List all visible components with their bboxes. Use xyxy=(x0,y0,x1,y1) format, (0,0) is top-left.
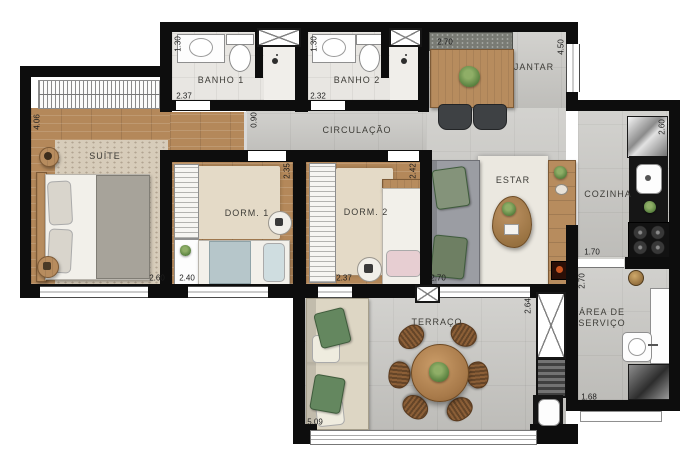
dim-jantar-width: 2.70 xyxy=(437,38,453,47)
dorm2-wardrobe xyxy=(309,163,336,283)
terraco-bbq-sink xyxy=(538,399,560,426)
dim-dorm1-width: 2.40 xyxy=(179,274,195,283)
estar-fireplace-flame-icon xyxy=(556,266,563,273)
suite-label: SUÍTE xyxy=(89,151,121,161)
banho1-label: BANHO 1 xyxy=(198,75,245,85)
banho2-window xyxy=(389,28,422,47)
dorm2-pouf-center xyxy=(364,264,373,273)
banho2-door xyxy=(311,101,345,110)
suite-blanket xyxy=(96,175,150,279)
dim-servico-width: 1.68 xyxy=(581,393,597,402)
banho2-label: BANHO 2 xyxy=(334,75,381,85)
cozinha-faucet-icon xyxy=(645,175,651,181)
banho1-shower-head-icon xyxy=(272,58,278,64)
dim-cozinha-opening: 1.70 xyxy=(584,248,600,257)
floor-plan: SUÍTE BANHO 1 BANHO 2 JANTAR CIRCULAÇÃO … xyxy=(0,0,700,466)
cozinha-label: COZINHA xyxy=(584,189,632,199)
banho1-window xyxy=(257,28,301,47)
estar-sideboard-deco xyxy=(555,184,568,195)
terraco-sliding-door xyxy=(437,286,530,298)
wall xyxy=(669,100,680,411)
dorm2-label: DORM. 2 xyxy=(344,207,389,217)
dorm1-door xyxy=(248,151,286,161)
banho1-toilet xyxy=(229,44,251,72)
wall xyxy=(530,424,578,444)
dim-terraco-height: 2.64 xyxy=(524,298,533,314)
wall xyxy=(625,257,669,269)
suite-bottom-window xyxy=(40,286,148,298)
suite-pouf-center xyxy=(43,262,51,270)
wall xyxy=(293,150,306,290)
dorm2-window xyxy=(318,286,352,298)
dim-dorm1-height: 2.35 xyxy=(283,163,292,179)
wall xyxy=(566,400,680,411)
wall xyxy=(566,225,578,411)
banho1-sink xyxy=(189,38,213,57)
servico-outer-ledge xyxy=(580,411,662,422)
dim-dorm2-height: 2.42 xyxy=(409,163,418,179)
dim-jantar-height: 4.50 xyxy=(557,39,566,55)
jantar-chair-2 xyxy=(473,104,507,130)
dim-banho1-height: 1.30 xyxy=(174,36,183,52)
servico-tank-basin xyxy=(628,338,646,356)
suite-pillow-1 xyxy=(47,180,73,225)
dim-suite-width: 2.60 xyxy=(149,274,165,283)
dorm2-door xyxy=(388,151,419,161)
wall xyxy=(20,66,168,77)
dorm1-window xyxy=(188,286,268,298)
dorm1-pouf-center xyxy=(275,218,283,226)
dim-suite-height: 4.06 xyxy=(33,114,42,130)
dorm1-blanket xyxy=(209,241,251,284)
estar-table-plant xyxy=(502,202,516,216)
cozinha-plant xyxy=(644,201,656,213)
dorm1-label: DORM. 1 xyxy=(225,208,270,218)
terraco-grate xyxy=(536,358,567,398)
estar-table-book xyxy=(504,224,519,235)
estar-label: ESTAR xyxy=(496,175,530,185)
banho1-door xyxy=(176,101,210,110)
banho2-toilet xyxy=(359,44,380,72)
wall xyxy=(160,150,172,284)
servico-counter xyxy=(650,288,670,364)
terraco-railing xyxy=(310,430,537,445)
estar-sideboard-plant xyxy=(554,166,567,179)
jantar-plant xyxy=(459,66,480,87)
terraco-label: TERRAÇO xyxy=(411,317,462,327)
dim-banho2-height: 1.30 xyxy=(310,36,319,52)
wall xyxy=(566,100,680,111)
dim-cozinha-height: 2.60 xyxy=(658,119,667,135)
servico-washer xyxy=(628,364,670,400)
dorm2-pillow xyxy=(386,250,421,277)
dim-circulacao-height: 0.90 xyxy=(250,112,259,128)
suite-lamp xyxy=(44,152,52,160)
dorm1-plant xyxy=(180,245,191,256)
cozinha-stove xyxy=(628,222,670,258)
dim-servico-height: 2.70 xyxy=(578,273,587,289)
terraco-shaft xyxy=(536,292,566,359)
banho2-shower-head-icon xyxy=(401,58,407,64)
banho2-sink xyxy=(322,38,346,57)
dorm1-rug xyxy=(197,166,280,239)
dorm1-wardrobe xyxy=(174,164,199,239)
jantar-label: JANTAR xyxy=(514,62,554,72)
jantar-window xyxy=(566,44,580,92)
terraco-pillow-3 xyxy=(309,374,346,415)
servico-door xyxy=(578,259,624,268)
servico-faucet-icon xyxy=(648,344,658,346)
wall xyxy=(566,22,578,44)
dim-terraco-width: 5.09 xyxy=(307,418,323,427)
suite-corridor-floor xyxy=(170,112,246,155)
wall xyxy=(420,150,432,290)
dim-banho1-width: 2.37 xyxy=(176,92,192,101)
suite-door-leaf xyxy=(244,112,247,155)
terraco-table-plant xyxy=(429,362,449,382)
wall xyxy=(160,22,172,112)
terraco-column-shaft xyxy=(415,285,440,303)
wall xyxy=(20,66,31,298)
suite-window-blind xyxy=(38,80,171,109)
dim-dorm2-width: 2.37 xyxy=(336,274,352,283)
servico-vase xyxy=(628,270,644,286)
dim-estar-width: 2.70 xyxy=(430,274,446,283)
wall xyxy=(293,284,305,444)
area-servico-label-2: SERVIÇO xyxy=(578,318,625,328)
banho2-shower-wall xyxy=(381,28,389,78)
wall xyxy=(160,22,578,32)
area-servico-label-1: ÁREA DE xyxy=(579,307,625,317)
circulacao-label: CIRCULAÇÃO xyxy=(322,125,391,135)
jantar-chair-1 xyxy=(438,104,472,130)
estar-throw-1 xyxy=(431,166,470,210)
dim-banho2-width: 2.32 xyxy=(310,92,326,101)
dorm1-pillow xyxy=(263,243,285,282)
